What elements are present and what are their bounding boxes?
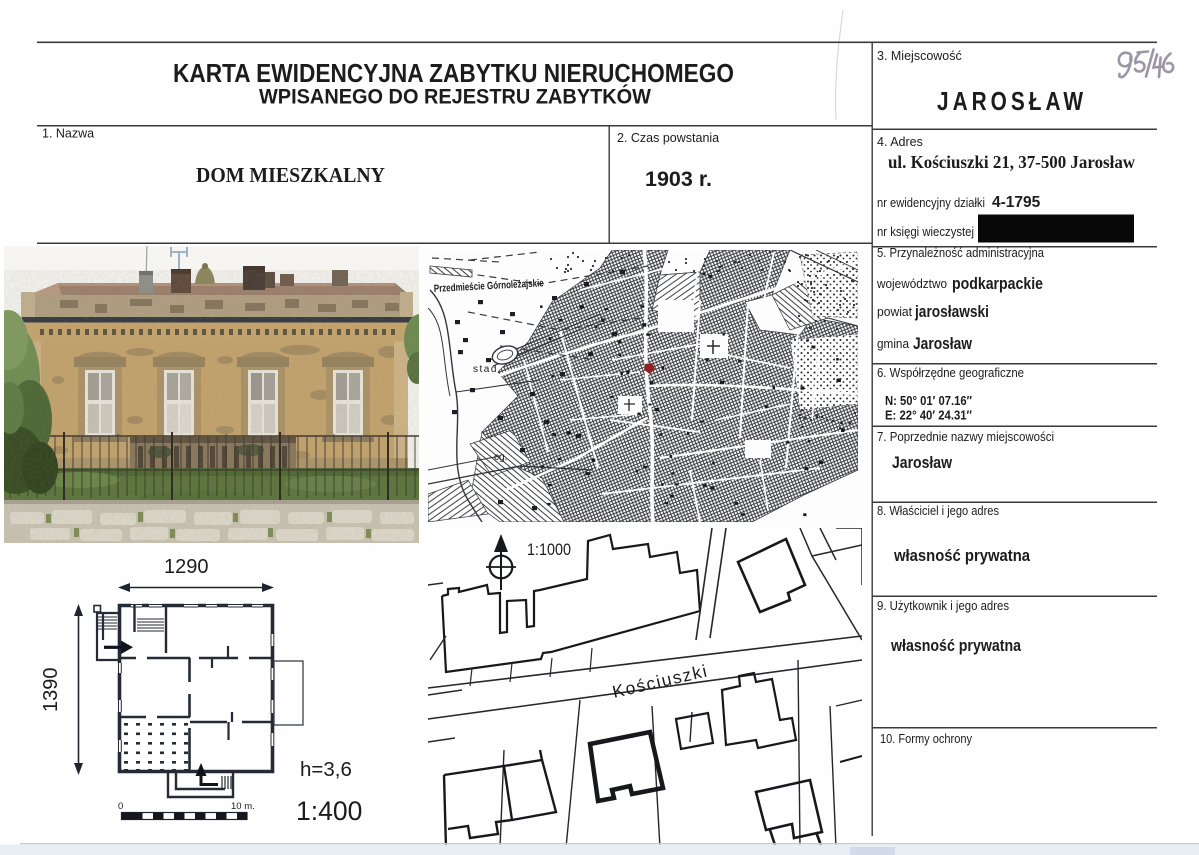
svg-text:cg.: cg. [494,452,507,463]
svg-text:WPISANEGO DO REJESTRU ZABYTKÓW: WPISANEGO DO REJESTRU ZABYTKÓW [259,84,652,109]
svg-text:3. Miejscowość: 3. Miejscowość [877,49,962,63]
svg-text:1903 r.: 1903 r. [645,168,712,191]
svg-text:KARTA EWIDENCYJNA ZABYTKU NIER: KARTA EWIDENCYJNA ZABYTKU NIERUCHOMEGO [173,58,734,88]
svg-text:N: 50° 01′ 07.16″: N: 50° 01′ 07.16″ [885,393,972,408]
svg-text:JAROSŁAW: JAROSŁAW [937,86,1087,116]
svg-text:podkarpackie: podkarpackie [952,275,1043,293]
svg-text:nr księgi wieczystej: nr księgi wieczystej [877,224,974,239]
svg-text:jarosławski: jarosławski [914,303,989,321]
svg-text:9. Użytkownik i jego adres: 9. Użytkownik i jego adres [877,599,1009,613]
svg-text:własność prywatna: własność prywatna [890,636,1021,655]
svg-text:Jarosław: Jarosław [913,335,972,353]
svg-text:1390: 1390 [40,668,62,713]
svg-text:DOM MIESZKALNY: DOM MIESZKALNY [196,163,385,187]
svg-text:1. Nazwa: 1. Nazwa [42,127,94,141]
svg-text:1:400: 1:400 [296,796,362,826]
svg-text:h=3,6: h=3,6 [300,758,352,781]
svg-text:1290: 1290 [164,556,209,578]
svg-text:ul. Kościuszki 21, 37-500 Jaro: ul. Kościuszki 21, 37-500 Jarosław [888,152,1135,172]
svg-text:1:1000: 1:1000 [527,541,571,559]
svg-text:8. Właściciel i jego adres: 8. Właściciel i jego adres [877,504,999,518]
svg-text:gmina: gmina [877,337,909,351]
svg-text:E: 22° 40′ 24.31″: E: 22° 40′ 24.31″ [885,408,972,423]
svg-text:6. Współrzędne geograficzne: 6. Współrzędne geograficzne [877,366,1024,380]
svg-text:własność prywatna: własność prywatna [893,546,1030,565]
svg-text:Jarosław: Jarosław [892,454,952,472]
svg-text:0: 0 [118,801,123,812]
svg-text:nr ewidencyjny działki 4-1795: nr ewidencyjny działki 4-1795 [877,194,1041,211]
svg-text:województwo: województwo [876,277,947,291]
svg-text:7. Poprzednie nazwy miejscowoś: 7. Poprzednie nazwy miejscowości [877,430,1054,444]
svg-text:10 m.: 10 m. [231,801,255,812]
svg-text:5. Przynależność administracyj: 5. Przynależność administracyjna [877,246,1044,260]
svg-text:stad: stad [473,364,498,375]
svg-text:2. Czas powstania: 2. Czas powstania [617,131,719,145]
svg-text:4. Adres: 4. Adres [877,135,923,149]
svg-text:10. Formy ochrony: 10. Formy ochrony [880,732,973,746]
svg-text:powiat: powiat [877,305,913,319]
